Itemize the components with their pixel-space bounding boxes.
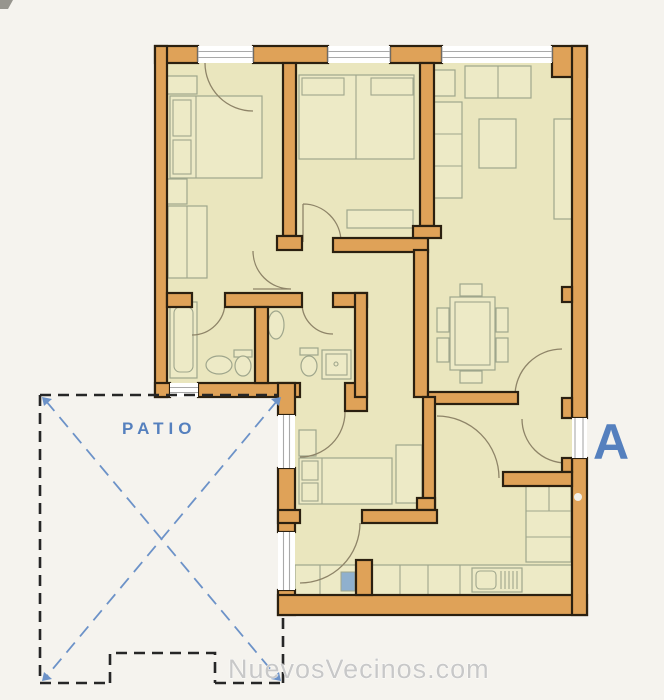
wall-bed2-living-divider (420, 63, 434, 226)
nightstand (167, 76, 197, 94)
toilet-tank (300, 348, 318, 355)
wall-right-lower (572, 458, 587, 615)
chair (496, 338, 508, 362)
entrance-door-opening (572, 418, 587, 458)
patio: PATIO (40, 395, 283, 683)
scanned-floor-plan-page: { "labels": { "patio": "PATIO", "unit": … (0, 0, 664, 700)
dining-table (450, 297, 495, 370)
wall-top-t1 (253, 46, 328, 63)
wall-bed3-right (423, 397, 435, 510)
wall-pilaster-2 (562, 398, 572, 418)
scan-artifact (0, 0, 13, 9)
sink-unit (472, 568, 522, 592)
wall-hall-top-a (167, 293, 192, 307)
chair (460, 371, 482, 383)
toilet-bowl (235, 356, 251, 376)
coffee-table (479, 119, 516, 168)
chair (437, 308, 449, 332)
wall-bed3-foot (417, 498, 435, 510)
wardrobe (396, 445, 422, 503)
wall-divider1-foot (277, 236, 302, 250)
wall-right-upper (572, 46, 587, 418)
side-table (433, 70, 455, 96)
sink (206, 356, 232, 374)
wall-pilaster-3 (562, 458, 572, 472)
double-bed (170, 96, 262, 178)
patio-arrowhead-bl (42, 672, 52, 681)
dresser (347, 210, 413, 228)
wall-hall-dining-divider (414, 250, 428, 397)
washbasin (268, 311, 284, 339)
wall-pilaster-1 (562, 287, 572, 302)
wall-bed3-bottom-b (362, 510, 437, 523)
wall-top-t2 (390, 46, 442, 63)
nightstand (167, 179, 187, 204)
window-bedroom3 (278, 415, 295, 468)
wall-drain-dot (574, 493, 582, 501)
patio-arrowhead-tl (42, 397, 52, 406)
window-bedroom2 (328, 46, 390, 63)
wall-left-exterior (155, 46, 167, 397)
unit-letter-label: A (593, 414, 629, 470)
double-bed (299, 458, 392, 504)
nightstand (299, 430, 316, 456)
chair (496, 308, 508, 332)
floor-plan-scan: PATIO A NuevosVecinos.com (0, 0, 664, 700)
wall-bed1-bed2-divider (283, 63, 296, 236)
wall-bath-divider (255, 307, 268, 383)
wall-kitchen-top (503, 472, 572, 486)
patio-label: PATIO (122, 419, 196, 438)
window-bedroom1 (198, 46, 253, 63)
chair (460, 284, 482, 296)
wall-hall-top-b (225, 293, 302, 307)
wall-bath2-right (355, 293, 367, 397)
window-kitchen (278, 532, 295, 590)
toilet-bowl (301, 356, 317, 376)
media-cabinet (554, 119, 573, 219)
wall-kitchen-stub (356, 560, 372, 595)
window-living-room (442, 46, 552, 63)
chair (437, 338, 449, 362)
wall-bed3-bottom-a (278, 510, 300, 523)
watermark-text: NuevosVecinos.com (228, 654, 490, 684)
sofa-three-seat (432, 102, 462, 198)
wall-divider2-foot (413, 226, 441, 238)
wall-dining-bottom (428, 392, 518, 404)
wall-kitchen-bottom (278, 595, 587, 615)
kitchen-counter (295, 565, 572, 595)
dishwasher (341, 572, 355, 591)
